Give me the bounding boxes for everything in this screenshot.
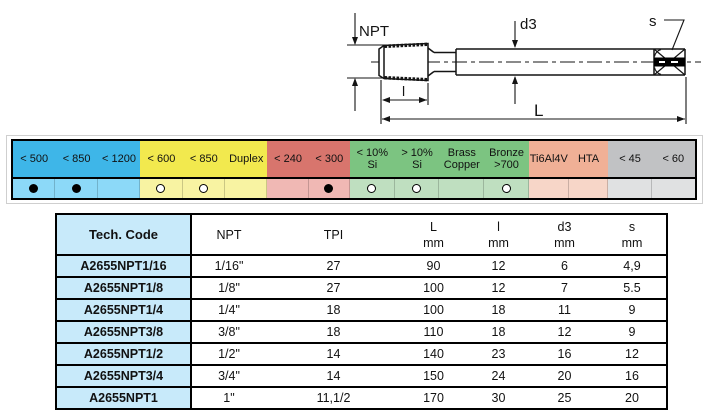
thread-serration-bottom [385, 78, 429, 80]
d3-label: d3 [520, 16, 537, 33]
spec-value-cell: 100 [401, 299, 466, 321]
filled-dot-icon [72, 184, 81, 193]
spec-value-cell: 1/16" [191, 255, 266, 277]
spec-value-cell: 140 [401, 343, 466, 365]
spec-table-row: A2655NPT3/83/8"1811018129 [56, 321, 667, 343]
material-column-label: < 850 [63, 153, 91, 166]
spec-table-row: A2655NPT1/21/2"14140231612 [56, 343, 667, 365]
material-column-label: < 10% [357, 147, 389, 160]
spec-value-cell: 110 [401, 321, 466, 343]
spec-value-cell: 24 [466, 365, 531, 387]
spec-value-cell: 9 [598, 299, 667, 321]
spec-value-cell: 12 [466, 277, 531, 299]
spec-value-cell: 150 [401, 365, 466, 387]
spec-value-cell: 7 [531, 277, 598, 299]
material-column-header: Bronze>700 [484, 141, 529, 177]
open-dot-icon [156, 184, 165, 193]
material-column-header: < 600 [140, 141, 182, 177]
spec-value-cell: 18 [466, 299, 531, 321]
spec-header-label: NPT [192, 227, 266, 243]
spec-header-unit: mm [531, 235, 598, 251]
spec-value-cell: 1/8" [191, 277, 266, 299]
material-column-label: < 240 [274, 153, 302, 166]
material-column-header: < 500 [13, 141, 55, 177]
material-column-label: Copper [444, 159, 480, 172]
thread-head [379, 44, 428, 81]
material-column-label: Si [412, 159, 422, 172]
spec-column-header: TPI [266, 214, 401, 255]
spec-value-cell: 25 [531, 387, 598, 409]
spec-value-cell: 1" [191, 387, 266, 409]
material-column-header: < 1200 [98, 141, 140, 177]
spec-value-cell: 14 [266, 365, 401, 387]
material-suitability-cell [652, 179, 695, 198]
material-suitability-cell [98, 179, 140, 198]
spec-value-cell: 11,1/2 [266, 387, 401, 409]
thread-serration-top [385, 44, 429, 46]
tech-code-cell: A2655NPT3/8 [56, 321, 191, 343]
material-column-label: < 60 [662, 153, 684, 166]
spec-value-cell: 12 [531, 321, 598, 343]
spec-header-unit: mm [466, 235, 531, 251]
spec-value-cell: 27 [266, 255, 401, 277]
material-column-header: > 10%Si [395, 141, 440, 177]
filled-dot-icon [29, 184, 38, 193]
spec-value-cell: 16 [598, 365, 667, 387]
spec-value-cell: 23 [466, 343, 531, 365]
spec-value-cell: 20 [531, 365, 598, 387]
material-suitability-cell [13, 179, 55, 198]
spec-value-cell: 20 [598, 387, 667, 409]
spec-value-cell: 12 [466, 255, 531, 277]
material-column-header: Ti6Al4V [529, 141, 569, 177]
material-suitability-cell [55, 179, 97, 198]
spec-value-cell: 14 [266, 343, 401, 365]
material-suitability-cell [608, 179, 651, 198]
material-suitability-cell [225, 179, 267, 198]
material-column-label: HTA [578, 153, 599, 166]
material-column-header: BrassCopper [439, 141, 484, 177]
material-column-label: >700 [494, 159, 519, 172]
material-column-header: < 300 [309, 141, 350, 177]
spec-value-cell: 27 [266, 277, 401, 299]
spec-value-cell: 5.5 [598, 277, 667, 299]
material-suitability-cell [350, 179, 395, 198]
open-dot-icon [412, 184, 421, 193]
filled-dot-icon [324, 184, 333, 193]
spec-header-label: L [401, 219, 466, 235]
spec-value-cell: 3/4" [191, 365, 266, 387]
material-suitability-cell [529, 179, 569, 198]
spec-value-cell: 11 [531, 299, 598, 321]
material-column-label: < 45 [619, 153, 641, 166]
material-column-label: Brass [448, 147, 476, 160]
materials-table: < 500< 850< 1200< 600< 850Duplex< 240< 3… [11, 139, 697, 200]
open-dot-icon [502, 184, 511, 193]
total-length-label: L [534, 101, 543, 120]
material-column-header: < 240 [267, 141, 308, 177]
open-dot-icon [199, 184, 208, 193]
spec-header-label: TPI [266, 227, 401, 243]
material-column-label: < 1200 [102, 153, 136, 166]
tech-code-cell: A2655NPT1/16 [56, 255, 191, 277]
tech-code-cell: A2655NPT1 [56, 387, 191, 409]
material-column-label: < 300 [315, 153, 343, 166]
spec-value-cell: 12 [598, 343, 667, 365]
spec-column-header: Tech. Code [56, 214, 191, 255]
spec-header-row: Tech. CodeNPTTPILmmlmmd3mmsmm [56, 214, 667, 255]
thread-length-label: l [402, 83, 405, 99]
material-suitability-cell [309, 179, 350, 198]
material-column-header: < 10%Si [350, 141, 395, 177]
spec-table-row: A2655NPT11"11,1/2170302520 [56, 387, 667, 409]
spec-value-cell: 18 [266, 299, 401, 321]
square-drive [654, 58, 685, 67]
s-label: s [649, 13, 657, 30]
spec-value-cell: 30 [466, 387, 531, 409]
tech-code-cell: A2655NPT1/8 [56, 277, 191, 299]
material-column-label: Ti6Al4V [530, 153, 568, 166]
spec-value-cell: 4,9 [598, 255, 667, 277]
materials-header-row: < 500< 850< 1200< 600< 850Duplex< 240< 3… [13, 141, 695, 179]
tech-code-cell: A2655NPT3/4 [56, 365, 191, 387]
spec-header-unit: mm [598, 235, 666, 251]
material-suitability-cell [395, 179, 440, 198]
spec-column-header: Lmm [401, 214, 466, 255]
material-suitability-cell [484, 179, 529, 198]
spec-column-header: d3mm [531, 214, 598, 255]
material-suitability-cell [183, 179, 225, 198]
materials-dots-row [13, 179, 695, 198]
material-column-header: < 45 [608, 141, 651, 177]
spec-value-cell: 3/8" [191, 321, 266, 343]
material-suitability-cell [140, 179, 182, 198]
tech-code-cell: A2655NPT1/2 [56, 343, 191, 365]
spec-table: Tech. CodeNPTTPILmmlmmd3mmsmm A2655NPT1/… [55, 213, 668, 410]
spec-header-label: s [598, 219, 666, 235]
material-column-label: Si [367, 159, 377, 172]
material-column-label: > 10% [401, 147, 433, 160]
spec-value-cell: 18 [466, 321, 531, 343]
spec-value-cell: 1/2" [191, 343, 266, 365]
material-suitability-cell [267, 179, 308, 198]
material-suitability-cell [439, 179, 484, 198]
npt-label: NPT [359, 23, 389, 40]
spec-value-cell: 18 [266, 321, 401, 343]
spec-table-row: A2655NPT1/161/16"27901264,9 [56, 255, 667, 277]
spec-table-row: A2655NPT3/43/4"14150242016 [56, 365, 667, 387]
material-column-header: Duplex [225, 141, 267, 177]
spec-table-body: A2655NPT1/161/16"27901264,9A2655NPT1/81/… [56, 255, 667, 409]
spec-value-cell: 6 [531, 255, 598, 277]
spec-table-row: A2655NPT1/81/8"271001275.5 [56, 277, 667, 299]
spec-column-header: lmm [466, 214, 531, 255]
spec-value-cell: 1/4" [191, 299, 266, 321]
open-dot-icon [367, 184, 376, 193]
spec-column-header: NPT [191, 214, 266, 255]
tech-code-cell: A2655NPT1/4 [56, 299, 191, 321]
spec-value-cell: 16 [531, 343, 598, 365]
spec-value-cell: 100 [401, 277, 466, 299]
spec-header-unit: mm [401, 235, 466, 251]
material-column-header: HTA [569, 141, 609, 177]
material-column-label: < 600 [148, 153, 176, 166]
spec-column-header: smm [598, 214, 667, 255]
material-column-header: < 850 [55, 141, 97, 177]
material-column-label: < 850 [190, 153, 218, 166]
spec-header-label: Tech. Code [57, 227, 190, 243]
spec-header-label: d3 [531, 219, 598, 235]
tap-technical-drawing: NPT d3 s l L [0, 0, 709, 133]
spec-table-row: A2655NPT1/41/4"1810018119 [56, 299, 667, 321]
spec-value-cell: 90 [401, 255, 466, 277]
s-leader-line [664, 20, 684, 50]
material-column-label: Duplex [229, 153, 263, 166]
material-column-header: < 850 [183, 141, 225, 177]
material-column-label: Bronze [489, 147, 524, 160]
spec-value-cell: 170 [401, 387, 466, 409]
spec-header-label: l [466, 219, 531, 235]
spec-table-container: Tech. CodeNPTTPILmmlmmd3mmsmm A2655NPT1/… [55, 213, 668, 410]
spec-value-cell: 9 [598, 321, 667, 343]
material-suitability-cell [569, 179, 609, 198]
material-column-label: < 500 [20, 153, 48, 166]
material-column-header: < 60 [652, 141, 695, 177]
